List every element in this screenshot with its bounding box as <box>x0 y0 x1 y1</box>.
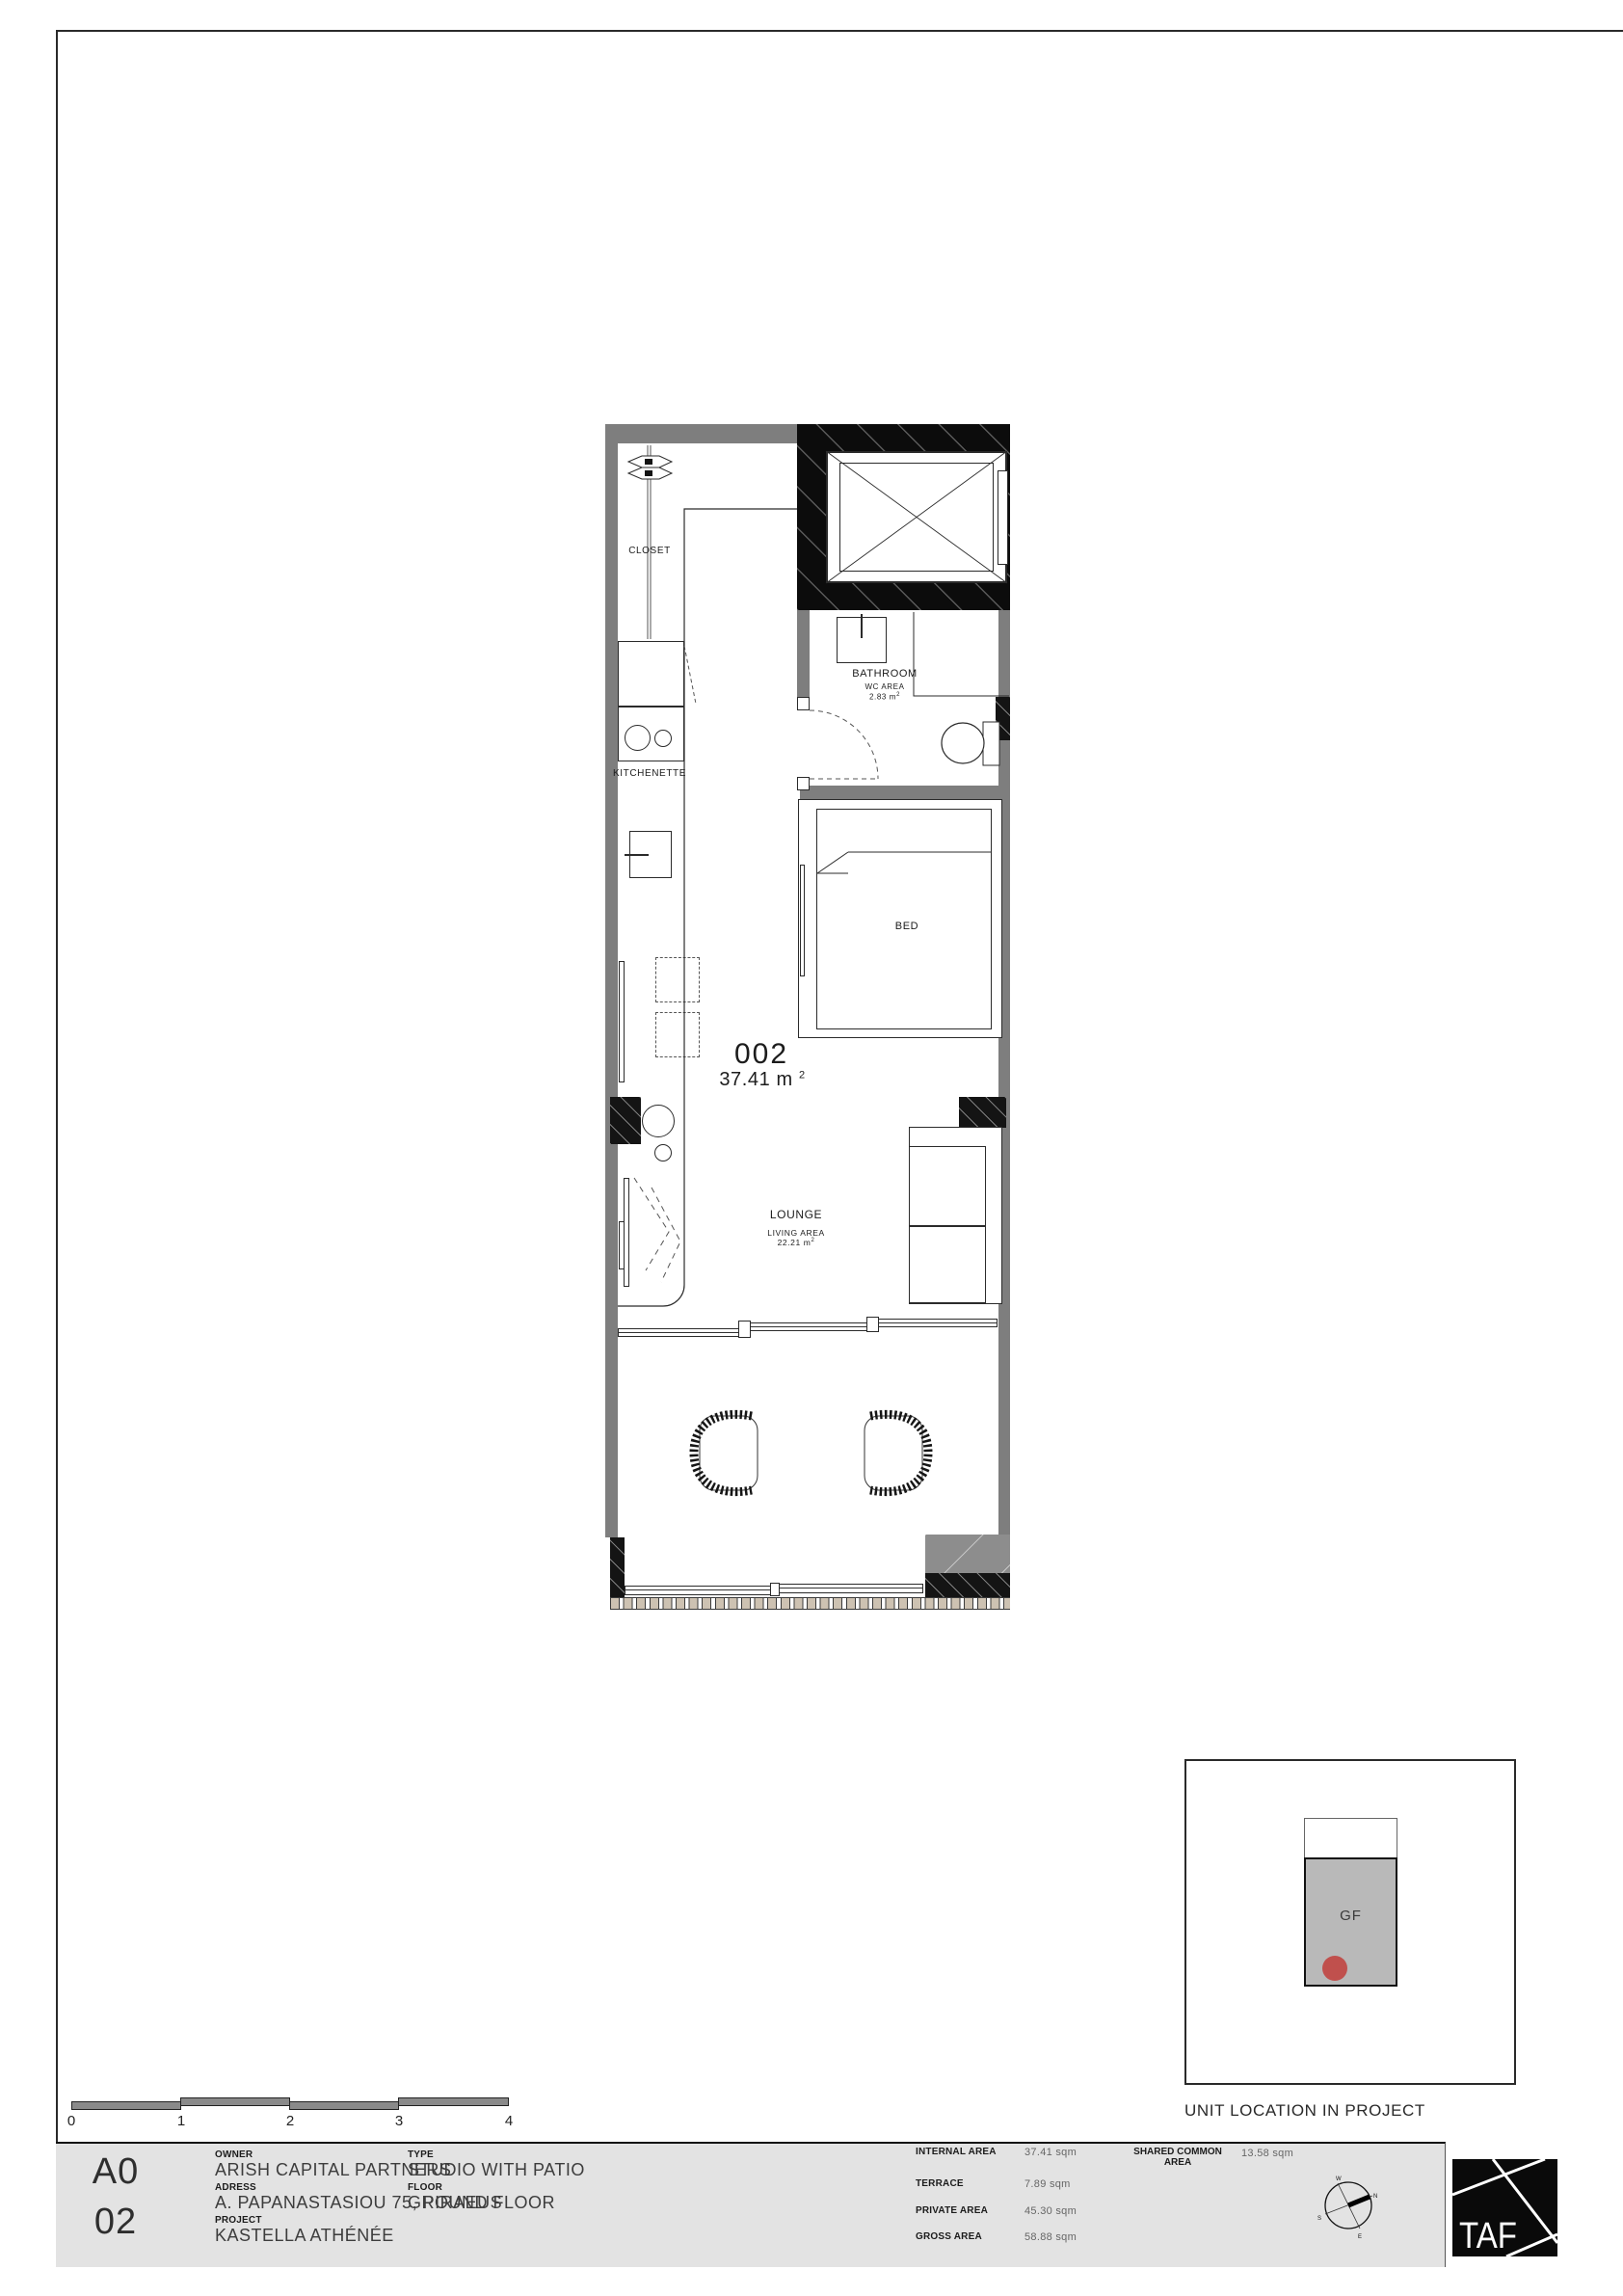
terrace-label: TERRACE <box>916 2178 964 2189</box>
label-bed: BED <box>895 921 918 932</box>
sheet-series: A0 <box>72 2151 159 2193</box>
label-kitchenette: KITCHENETTE <box>613 768 686 779</box>
sheet-number: 02 <box>72 2202 159 2243</box>
plan-linework <box>605 424 1010 1608</box>
gf-label: GF <box>1304 1908 1397 1924</box>
floor-plan: CLOSET KITCHENETTE BATHROOM WC AREA 2.83… <box>605 424 1010 1608</box>
label-living-area: LIVING AREA <box>767 1228 825 1238</box>
svg-text:S: S <box>1317 2216 1321 2222</box>
scale-segment <box>71 2101 181 2110</box>
scale-tick-4: 4 <box>494 2113 523 2129</box>
type-value: STUDIO WITH PATIO <box>408 2160 585 2180</box>
unit-location-box: GF <box>1184 1759 1516 2085</box>
scale-segment <box>180 2097 290 2106</box>
unit-number: 002 <box>734 1038 788 1071</box>
taf-logo: TAF <box>1452 2159 1557 2256</box>
internal-area-value: 37.41 sqm <box>1024 2147 1077 2158</box>
project-label: PROJECT <box>215 2215 262 2226</box>
unit-area: 37.41 m 2 <box>719 1069 805 1091</box>
gross-area-label: GROSS AREA <box>916 2231 982 2242</box>
label-wc-area: WC AREA <box>865 682 904 691</box>
compass-icon: W N S E <box>1309 2169 1392 2242</box>
type-label: TYPE <box>408 2149 434 2160</box>
label-lounge: LOUNGE <box>770 1208 822 1221</box>
internal-area-label: INTERNAL AREA <box>916 2147 997 2157</box>
drawing-sheet: CLOSET KITCHENETTE BATHROOM WC AREA 2.83… <box>0 0 1623 2296</box>
private-area-label: PRIVATE AREA <box>916 2205 988 2216</box>
scale-tick-2: 2 <box>276 2113 305 2129</box>
floor-value: GROUND FLOOR <box>408 2193 555 2213</box>
sheet-border-top <box>56 30 1623 32</box>
svg-text:N: N <box>1373 2194 1377 2200</box>
label-wc-area-size: 2.83 m2 <box>869 692 900 702</box>
project-value: KASTELLA ATHÉNÉE <box>215 2226 394 2246</box>
unit-marker <box>1322 1956 1347 1981</box>
scale-tick-1: 1 <box>167 2113 196 2129</box>
private-area-value: 45.30 sqm <box>1024 2205 1077 2217</box>
address-label: ADRESS <box>215 2182 256 2193</box>
shared-common-label: SHARED COMMON AREA <box>1125 2147 1231 2168</box>
label-living-area-size: 22.21 m2 <box>778 1238 815 1247</box>
floor-label: FLOOR <box>408 2182 442 2193</box>
unit-location-caption: UNIT LOCATION IN PROJECT <box>1184 2101 1425 2121</box>
taf-logo-text: TAF <box>1459 2216 1517 2256</box>
owner-label: OWNER <box>215 2149 253 2160</box>
building-upper-block <box>1304 1818 1397 1858</box>
gross-area-value: 58.88 sqm <box>1024 2231 1077 2243</box>
shared-common-value: 13.58 sqm <box>1241 2148 1293 2159</box>
label-closet: CLOSET <box>628 546 671 556</box>
scale-tick-0: 0 <box>57 2113 86 2129</box>
svg-text:E: E <box>1358 2234 1362 2240</box>
label-bathroom: BATHROOM <box>852 668 918 680</box>
svg-text:W: W <box>1336 2176 1342 2182</box>
sheet-border-left <box>56 30 58 2267</box>
taf-logo-lines: TAF <box>1452 2159 1557 2256</box>
scale-segment <box>289 2101 399 2110</box>
scale-segment <box>398 2097 509 2106</box>
scale-tick-3: 3 <box>385 2113 413 2129</box>
terrace-value: 7.89 sqm <box>1024 2178 1071 2190</box>
